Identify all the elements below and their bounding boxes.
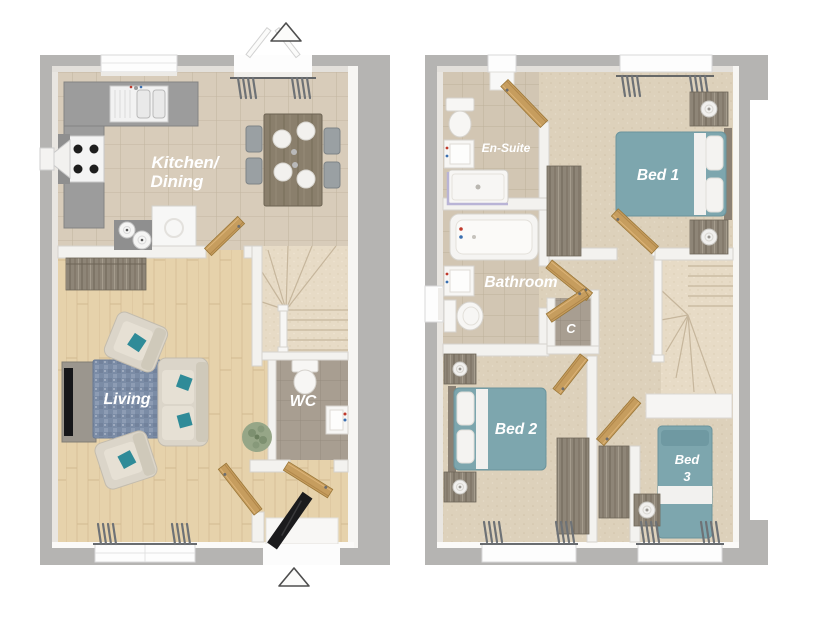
cupboard-label: C — [566, 321, 576, 336]
bed1-label: Bed 1 — [637, 167, 679, 184]
bedside-table — [444, 354, 476, 384]
wc-basin — [326, 406, 348, 434]
first-floor-plan: En-Suite Bed 1 Bathroom C Bed 2 Bed 3 — [425, 55, 768, 565]
ground-floor-plan: Kitchen/ Dining Living WC — [40, 23, 390, 586]
ground-stairs — [262, 246, 348, 353]
ensuite-label: En-Suite — [482, 141, 531, 155]
floorplan-svg: Kitchen/ Dining Living WC — [0, 0, 840, 627]
bedside-table — [444, 472, 476, 502]
sofa — [158, 358, 208, 446]
floorplan-image: Kitchen/ Dining Living WC — [0, 0, 840, 627]
bathtub — [450, 214, 538, 260]
bedside-table — [690, 92, 728, 126]
kitchen-dining-label: Kitchen/ — [151, 153, 220, 172]
living-label: Living — [103, 391, 150, 408]
sideboard — [66, 258, 146, 290]
cooker — [68, 136, 104, 182]
wc-room — [276, 360, 348, 460]
kitchen-sink — [110, 86, 168, 122]
ensuite-window — [488, 55, 516, 72]
dining-chair — [324, 162, 340, 188]
kitchen-window — [101, 55, 177, 76]
bathroom-basin — [444, 266, 474, 296]
dining-chair — [246, 126, 262, 152]
stair-bulkhead — [646, 394, 732, 418]
entrance-arrow-bottom-icon — [279, 568, 309, 586]
bed2-wardrobe — [557, 438, 589, 534]
wc-label: WC — [290, 393, 317, 410]
stair-handrail — [280, 308, 287, 352]
tv — [64, 368, 73, 436]
ensuite-basin — [444, 140, 474, 168]
bedside-table — [690, 220, 728, 254]
first-stairs — [652, 248, 733, 394]
kitchen-canisters — [114, 220, 152, 250]
washing-machine — [152, 206, 196, 246]
plant — [242, 422, 272, 452]
bed1-wardrobe — [547, 166, 581, 256]
dining-chair — [324, 128, 340, 154]
bathroom-window — [425, 286, 443, 322]
shower — [448, 170, 508, 204]
bathroom-label: Bathroom — [484, 274, 557, 291]
bed3-label: Bed — [675, 452, 701, 467]
hall-wardrobe — [599, 446, 629, 518]
kitchen-dining-label2: Dining — [151, 172, 204, 191]
bathroom-toilet — [444, 300, 483, 332]
bed3-label2: 3 — [683, 469, 691, 484]
bed2-label: Bed 2 — [495, 421, 538, 438]
stair-handrail — [654, 252, 662, 360]
dining-chair — [246, 158, 262, 184]
